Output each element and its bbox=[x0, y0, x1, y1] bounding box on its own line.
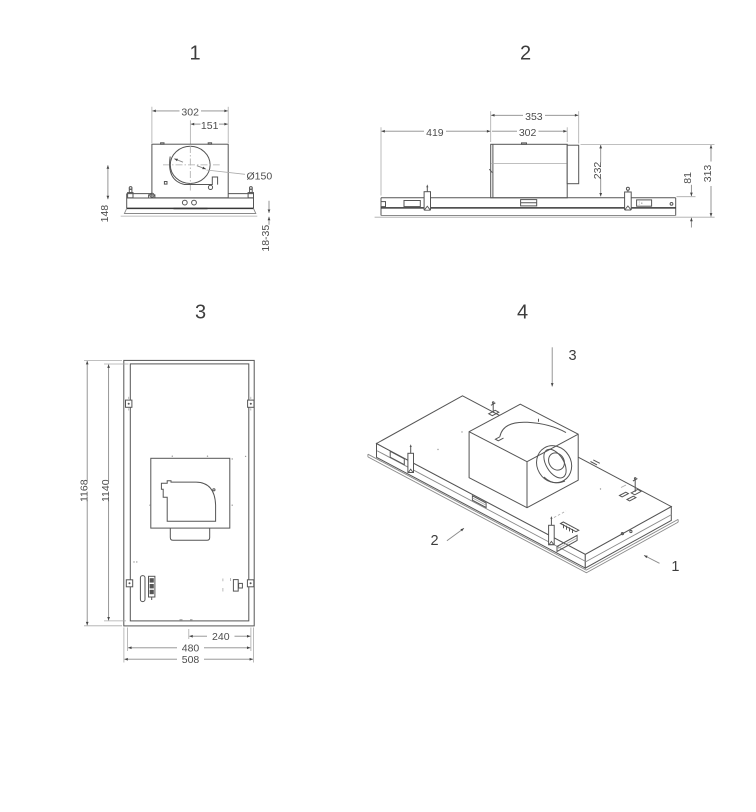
svg-text:3: 3 bbox=[195, 302, 206, 324]
svg-text:2: 2 bbox=[520, 42, 531, 64]
svg-text:313: 313 bbox=[702, 165, 714, 183]
svg-text:232: 232 bbox=[592, 162, 604, 180]
svg-text:2: 2 bbox=[430, 533, 438, 549]
svg-text:18-35: 18-35 bbox=[260, 225, 272, 252]
svg-text:302: 302 bbox=[519, 127, 537, 139]
svg-text:240: 240 bbox=[212, 631, 230, 643]
svg-text:Ø150: Ø150 bbox=[247, 170, 273, 182]
svg-text:1140: 1140 bbox=[100, 479, 112, 502]
svg-text:3: 3 bbox=[568, 348, 576, 364]
svg-text:81: 81 bbox=[682, 172, 694, 184]
svg-text:419: 419 bbox=[426, 127, 444, 139]
svg-text:4: 4 bbox=[517, 302, 528, 324]
svg-text:1: 1 bbox=[671, 559, 679, 575]
svg-text:508: 508 bbox=[182, 654, 200, 666]
svg-text:302: 302 bbox=[181, 107, 199, 119]
svg-text:480: 480 bbox=[182, 643, 200, 655]
svg-text:151: 151 bbox=[201, 120, 219, 132]
svg-text:1: 1 bbox=[189, 42, 200, 64]
svg-text:1168: 1168 bbox=[78, 479, 90, 502]
svg-text:353: 353 bbox=[525, 111, 543, 123]
svg-text:148: 148 bbox=[99, 205, 111, 223]
